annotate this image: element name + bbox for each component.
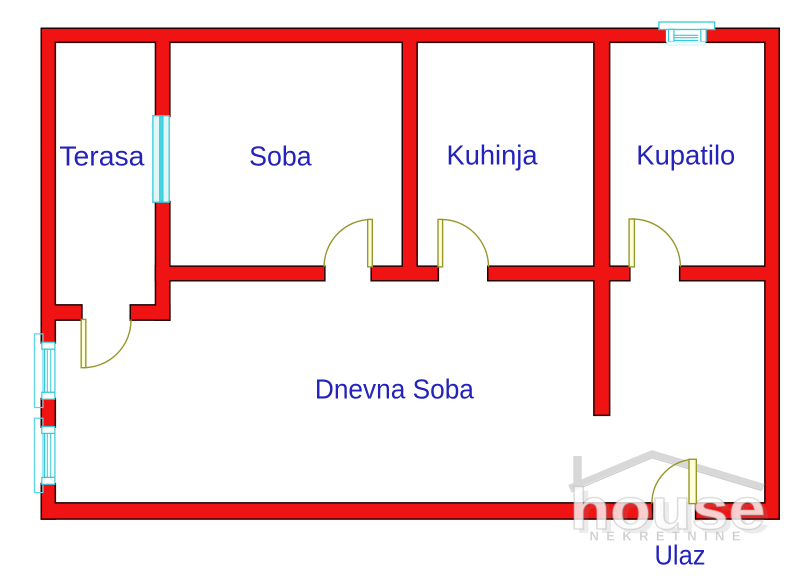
svg-text:Dnevna Soba: Dnevna Soba xyxy=(315,373,474,404)
svg-text:Ulaz: Ulaz xyxy=(655,539,706,570)
svg-text:Kupatilo: Kupatilo xyxy=(636,139,735,170)
svg-text:Soba: Soba xyxy=(249,140,312,171)
svg-text:Kuhinja: Kuhinja xyxy=(447,139,538,170)
svg-text:Terasa: Terasa xyxy=(59,140,144,171)
